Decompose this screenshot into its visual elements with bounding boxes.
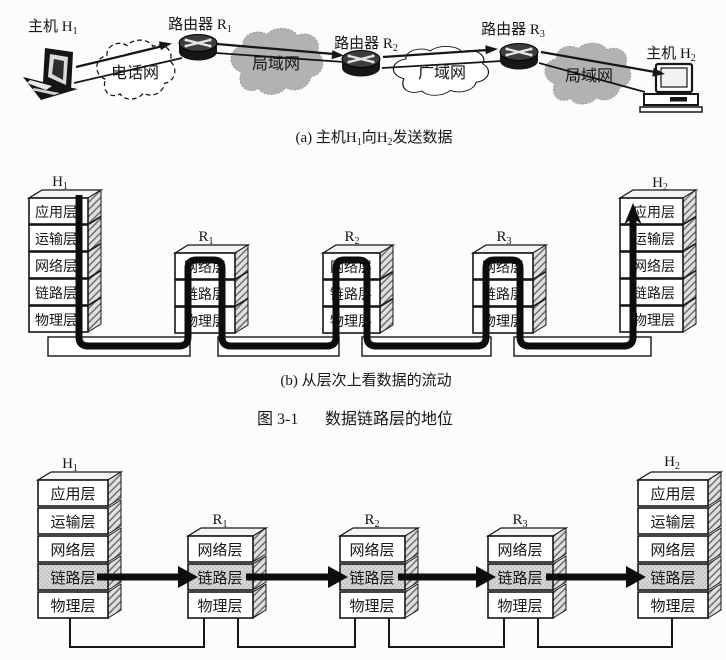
layer-label: 链路层	[633, 286, 675, 302]
stack-c-r1: 网络层 链路层 物理层 R1	[188, 512, 266, 618]
stack-b-h2-label: H2	[652, 175, 668, 193]
host-h1-label: 主机 H1	[28, 18, 78, 37]
layer-label: 物理层	[349, 598, 394, 615]
physical-link-r2-r3	[389, 618, 504, 647]
router-r1-icon	[179, 35, 217, 61]
layer-label: 链路层	[35, 286, 77, 302]
stack-c-r1-label: R1	[212, 512, 227, 530]
stack-c-h1: 应用层 运输层 网络层 链路层 物理层 H1	[38, 456, 121, 618]
layer-label: 网络层	[349, 542, 394, 559]
section-b-layered-flow: 应用层 运输层 网络层 链路层 物理层 H1 网络层 链路层 物理层 R1	[29, 174, 696, 389]
stack-c-h1-label: H1	[62, 456, 78, 474]
layer-label: 网络层	[650, 542, 695, 559]
figure-caption: 图 3-1 数据链路层的地位	[257, 410, 453, 428]
layer-label: 物理层	[497, 598, 542, 615]
router-r2-label: 路由器 R2	[334, 35, 398, 54]
layer-label: 运输层	[35, 232, 77, 248]
book-page: 主机 H1 路由器 R1 路由器 R2 路由器 R3 主机 H2 电话网 局域网…	[0, 0, 726, 660]
layer-label: 物理层	[35, 313, 77, 329]
lan1-label: 局域网	[252, 55, 300, 73]
stack-c-h2: 应用层 运输层 网络层 链路层 物理层 H2	[638, 454, 721, 618]
host-h1-icon	[23, 48, 78, 100]
physical-link-r3-h2	[538, 618, 672, 647]
lan2-label: 局域网	[565, 67, 613, 85]
layer-label: 网络层	[35, 259, 77, 275]
stack-b-r2-label: R2	[344, 229, 359, 247]
stack-c-r2: 网络层 链路层 物理层 R2	[340, 512, 418, 618]
layer-label: 运输层	[50, 514, 95, 531]
phone-network-label: 电话网	[111, 64, 159, 82]
stack-b-h1: 应用层 运输层 网络层 链路层 物理层 H1	[29, 174, 101, 332]
layer-label: 网络层	[50, 542, 95, 559]
router-r3-label: 路由器 R3	[481, 21, 545, 40]
stack-b-h1-label: H1	[52, 174, 68, 192]
layer-label: 网络层	[197, 542, 242, 559]
router-r2-icon	[342, 51, 380, 77]
figure-caption-number: 图 3-1	[257, 411, 298, 428]
stack-b-r3-label: R3	[496, 229, 511, 247]
layer-label: 应用层	[650, 485, 695, 503]
layer-label: 应用层	[633, 204, 675, 221]
physical-link-r1-r2	[238, 618, 355, 647]
physical-link-h1-r1	[70, 618, 204, 647]
caption-b: (b) 从层次上看数据的流动	[280, 372, 451, 389]
layer-label: 物理层	[650, 598, 695, 615]
layer-label: 链路层	[650, 570, 695, 587]
router-r1-label: 路由器 R1	[168, 16, 232, 35]
section-c-link-hops: 应用层 运输层 网络层 链路层 物理层 H1 网络层 链路层 物理层 R1	[38, 454, 721, 647]
layer-label: 运输层	[633, 232, 675, 248]
link-r2-r3-arrowhead	[485, 45, 498, 54]
section-a-topology: 主机 H1 路由器 R1 路由器 R2 路由器 R3 主机 H2 电话网 局域网…	[23, 16, 702, 148]
layer-label: 链路层	[197, 570, 242, 587]
wan-label: 广域网	[418, 64, 466, 82]
stack-c-r3: 网络层 链路层 物理层 R3	[488, 512, 566, 618]
figure-canvas: 主机 H1 路由器 R1 路由器 R2 路由器 R3 主机 H2 电话网 局域网…	[0, 0, 726, 660]
layer-label: 链路层	[497, 570, 542, 587]
layer-label: 应用层	[35, 204, 77, 221]
layer-label: 物理层	[633, 313, 675, 329]
layer-label: 链路层	[349, 570, 394, 587]
layer-label: 网络层	[497, 542, 542, 559]
layer-label: 运输层	[650, 514, 695, 531]
stack-c-r3-label: R3	[512, 512, 527, 530]
stack-b-r1-label: R1	[198, 229, 213, 247]
router-r3-icon	[500, 44, 538, 70]
layer-label: 应用层	[50, 485, 95, 503]
caption-a: (a) 主机H1向H2发送数据	[295, 129, 452, 148]
physical-links	[70, 618, 672, 647]
figure-caption-title: 数据链路层的地位	[325, 410, 453, 428]
layer-label: 物理层	[50, 598, 95, 615]
layer-label: 物理层	[197, 598, 242, 615]
host-h2-label: 主机 H2	[646, 45, 696, 64]
layer-label: 链路层	[50, 570, 95, 587]
stack-c-h2-label: H2	[664, 454, 680, 472]
layer-label: 网络层	[633, 259, 675, 275]
stack-c-r2-label: R2	[364, 512, 379, 530]
